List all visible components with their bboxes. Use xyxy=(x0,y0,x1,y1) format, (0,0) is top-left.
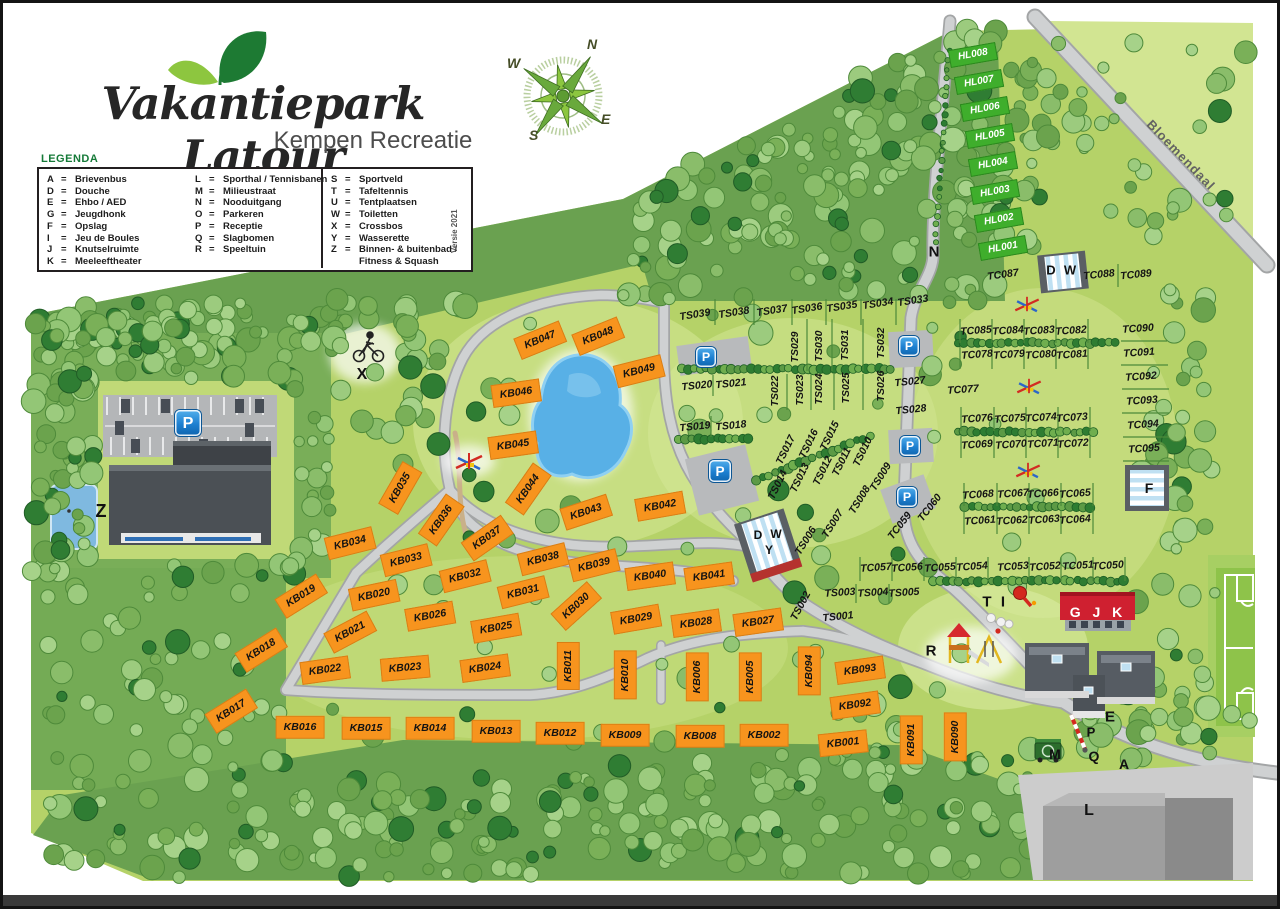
plot-TS031: TS031 xyxy=(840,330,851,361)
legend-entry-E: E=Ehbo / AED xyxy=(47,197,142,209)
plot-TS022: TS022 xyxy=(770,376,781,407)
road-label-bloemendaal: Bloemendaal xyxy=(1144,117,1219,194)
plot-KB001: KB001 xyxy=(818,729,869,756)
compass-w-label: W xyxy=(507,55,520,71)
plot-TC072: TC072 xyxy=(1057,438,1089,451)
plot-HL004: HL004 xyxy=(968,151,1018,177)
plot-KB043: KB043 xyxy=(559,494,612,530)
plot-TS027: TS027 xyxy=(894,375,926,389)
plot-TS008: TS008 xyxy=(847,484,872,516)
parking-icon: P xyxy=(709,460,731,482)
plot-TC074: TC074 xyxy=(1025,412,1057,425)
marker-e-ehbo: E xyxy=(1105,710,1115,725)
compass-rose-icon xyxy=(500,33,626,159)
plot-TS014: TS014 xyxy=(767,469,790,501)
plot-TC082: TC082 xyxy=(1055,325,1087,338)
compass-e-label: E xyxy=(601,111,610,127)
plot-TS013: TS013 xyxy=(789,462,812,494)
marker-w-toilet-top: W xyxy=(1064,264,1076,277)
plot-TC053: TC053 xyxy=(997,561,1029,574)
plot-TC079: TC079 xyxy=(993,349,1025,362)
plot-TC066: TC066 xyxy=(1027,488,1059,501)
plot-TC083: TC083 xyxy=(1023,325,1055,338)
plot-TC078: TC078 xyxy=(961,349,993,362)
plot-KB036: KB036 xyxy=(418,494,464,547)
plot-KB028: KB028 xyxy=(670,608,721,637)
plot-TS038: TS038 xyxy=(718,305,750,320)
plot-TS019: TS019 xyxy=(679,420,711,434)
compass-n-label: N xyxy=(587,36,597,52)
legend-column-2: L=Sporthal / TennisbanenM=MilieustraatN=… xyxy=(195,174,327,256)
legend-entry-W: W=Toiletten xyxy=(331,209,457,221)
plot-TS020: TS020 xyxy=(681,379,713,393)
plot-TS030: TS030 xyxy=(814,331,825,362)
plot-TC067: TC067 xyxy=(997,488,1029,501)
plot-TC054: TC054 xyxy=(956,561,988,574)
plot-TC052: TC052 xyxy=(1029,561,1061,574)
plot-KB011: KB011 xyxy=(557,642,580,690)
plot-KB005: KB005 xyxy=(739,653,762,702)
marker-n-nooduitgang: N xyxy=(929,245,940,260)
marker-gjk-building: G J K xyxy=(1070,605,1127,619)
plot-TC077: TC077 xyxy=(947,384,979,397)
plot-KB017: KB017 xyxy=(204,689,257,734)
marker-d-toilet-top: D xyxy=(1046,264,1055,277)
plot-TC050: TC050 xyxy=(1092,560,1124,573)
plot-TS002: TS002 xyxy=(789,590,813,622)
plot-TS003: TS003 xyxy=(824,587,856,600)
plot-TS017: TS017 xyxy=(775,434,798,466)
plot-TC081: TC081 xyxy=(1056,349,1088,362)
plot-TS035: TS035 xyxy=(826,299,858,314)
plot-KB032: KB032 xyxy=(439,559,492,593)
plot-TC065: TC065 xyxy=(1059,488,1091,501)
legend-entry-U: U=Tentplaatsen xyxy=(331,197,457,209)
plot-KB048: KB048 xyxy=(571,316,625,355)
plot-KB091: KB091 xyxy=(900,716,923,765)
legend-version: Versie 2021 xyxy=(450,209,459,253)
plot-KB049: KB049 xyxy=(613,354,666,388)
plot-KB023: KB023 xyxy=(380,655,430,682)
plot-KB090: KB090 xyxy=(944,713,967,762)
plot-TC093: TC093 xyxy=(1126,395,1158,408)
plot-KB009: KB009 xyxy=(601,724,650,747)
parking-icon: P xyxy=(897,487,917,507)
plot-TS025: TS025 xyxy=(841,373,852,404)
plot-TC064: TC064 xyxy=(1059,514,1091,527)
plot-HL005: HL005 xyxy=(965,123,1015,149)
plot-KB016: KB016 xyxy=(276,716,325,739)
plot-KB092: KB092 xyxy=(829,690,880,719)
plot-TS009: TS009 xyxy=(868,461,893,493)
plot-HL001: HL001 xyxy=(978,235,1028,261)
marker-t-tafeltennis: T xyxy=(982,595,991,610)
marker-x-crossbos: X xyxy=(357,367,368,383)
compass-s-label: S xyxy=(529,127,538,143)
legend-entry-Q: Q=Slagbomen xyxy=(195,233,327,245)
legend-entry-M: M=Milieustraat xyxy=(195,186,327,198)
marker-f-opslag: F xyxy=(1145,481,1154,495)
legend-entry-O: O=Parkeren xyxy=(195,209,327,221)
plot-KB041: KB041 xyxy=(683,561,734,590)
plot-KB024: KB024 xyxy=(459,653,510,682)
plot-TS024: TS024 xyxy=(814,374,825,405)
parking-icon: P xyxy=(175,410,201,436)
plot-KB014: KB014 xyxy=(406,717,455,740)
marker-a-brievenbus: A xyxy=(1119,757,1129,771)
marker-l-sporthal: L xyxy=(1084,803,1094,819)
plot-TS021: TS021 xyxy=(715,377,747,391)
plot-TS023: TS023 xyxy=(795,375,806,406)
legend-entry-J: J=Knutselruimte xyxy=(47,244,142,256)
plot-TC085: TC085 xyxy=(960,325,992,338)
parking-icon: P xyxy=(696,347,716,367)
plot-TC055: TC055 xyxy=(924,562,956,575)
plot-KB031: KB031 xyxy=(497,575,550,609)
marker-q-slagboom: Q xyxy=(1089,749,1100,763)
plot-TC088: TC088 xyxy=(1083,268,1115,282)
plot-KB021: KB021 xyxy=(323,611,377,654)
legend-entry-K: K=Meeleeftheater xyxy=(47,256,142,268)
plot-TC070: TC070 xyxy=(995,439,1027,452)
plot-KB027: KB027 xyxy=(732,607,783,636)
legend-entry-L: L=Sporthal / Tennisbanen xyxy=(195,174,327,186)
plot-KB093: KB093 xyxy=(834,655,885,684)
plot-KB038: KB038 xyxy=(517,542,570,576)
legend-heading: LEGENDA xyxy=(41,153,98,165)
marker-y-wasserette: Y xyxy=(765,544,773,556)
plot-TC060: TC060 xyxy=(916,492,944,523)
plot-KB033: KB033 xyxy=(380,543,433,577)
plot-KB094: KB094 xyxy=(798,647,821,696)
legend-entry-Z: Z=Binnen- & buitenbad / Fitness & Squash xyxy=(331,244,457,267)
marker-i-jeudeboules: I xyxy=(1001,595,1005,610)
legend-entry-D: D=Douche xyxy=(47,186,142,198)
marker-z-zwembad: Z xyxy=(96,502,107,520)
plot-KB046: KB046 xyxy=(490,378,541,407)
plot-TS007: TS007 xyxy=(820,508,845,540)
plot-KB039: KB039 xyxy=(568,548,621,582)
plot-TC087: TC087 xyxy=(987,268,1020,283)
plot-TS026: TS026 xyxy=(876,371,887,402)
plot-KB025: KB025 xyxy=(470,613,522,644)
parking-icon: P xyxy=(899,336,919,356)
plot-KB010: KB010 xyxy=(614,651,637,700)
legend-entry-R: R=Speeltuin xyxy=(195,244,327,256)
plot-HL006: HL006 xyxy=(960,96,1010,122)
plot-KB022: KB022 xyxy=(299,655,350,684)
plot-TS018: TS018 xyxy=(715,419,747,433)
plot-KB018: KB018 xyxy=(234,628,287,673)
plot-KB044: KB044 xyxy=(505,463,551,516)
plot-KB013: KB013 xyxy=(472,720,521,743)
plot-TC089: TC089 xyxy=(1120,268,1152,282)
plot-TS004: TS004 xyxy=(857,587,889,600)
plot-TS010: TS010 xyxy=(852,436,875,468)
plot-TC051: TC051 xyxy=(1062,560,1094,573)
plot-TC062: TC062 xyxy=(996,515,1028,528)
plot-KB026: KB026 xyxy=(404,601,456,632)
legend-entry-N: N=Nooduitgang xyxy=(195,197,327,209)
plot-TS034: TS034 xyxy=(862,296,894,311)
plot-KB045: KB045 xyxy=(487,430,538,459)
plot-TS028: TS028 xyxy=(895,403,927,417)
parking-icon: P xyxy=(900,436,920,456)
marker-p-receptie: P xyxy=(1087,726,1096,739)
plot-KB040: KB040 xyxy=(624,561,675,590)
plot-KB042: KB042 xyxy=(634,491,686,522)
plot-TC057: TC057 xyxy=(860,562,892,575)
plot-KB020: KB020 xyxy=(348,579,400,611)
plot-KB006: KB006 xyxy=(686,653,709,702)
plot-TC084: TC084 xyxy=(992,325,1024,338)
plot-KB012: KB012 xyxy=(536,722,585,745)
plot-KB037: KB037 xyxy=(461,515,514,561)
plot-HL003: HL003 xyxy=(970,179,1020,205)
park-subtitle: Kempen Recreatie xyxy=(253,127,493,155)
plot-KB034: KB034 xyxy=(324,526,377,560)
plot-TC080: TC080 xyxy=(1025,349,1057,362)
plot-TS032: TS032 xyxy=(876,328,887,359)
plot-TS015: TS015 xyxy=(819,420,842,452)
plot-TC071: TC071 xyxy=(1027,438,1059,451)
plot-TC075: TC075 xyxy=(994,413,1026,426)
park-map-page: Vakantiepark Latour Kempen Recreatie LEG… xyxy=(0,0,1280,909)
bottom-bar xyxy=(3,895,1277,906)
plot-KB047: KB047 xyxy=(513,320,567,359)
legend-column-1: A=BrievenbusD=DoucheE=Ehbo / AEDG=Jeugdh… xyxy=(47,174,142,268)
map-labels-layer: Vakantiepark Latour Kempen Recreatie LEG… xyxy=(3,3,1277,906)
plot-KB035: KB035 xyxy=(378,461,422,514)
plot-KB019: KB019 xyxy=(274,574,327,619)
plot-TC056: TC056 xyxy=(891,562,923,575)
plot-TS039: TS039 xyxy=(679,307,711,322)
plot-TC068: TC068 xyxy=(962,489,994,502)
plot-HL008: HL008 xyxy=(948,42,998,68)
marker-m-milieustraat: M xyxy=(1049,747,1061,761)
plot-TC059: TC059 xyxy=(886,510,914,541)
marker-r-speeltuin: R xyxy=(926,644,937,659)
plot-TS033: TS033 xyxy=(897,293,929,308)
plot-TC092: TC092 xyxy=(1125,371,1157,384)
plot-KB008: KB008 xyxy=(676,725,725,748)
marker-w-toilet-mid: W xyxy=(770,528,781,540)
plot-TS006: TS006 xyxy=(793,525,818,557)
plot-TS029: TS029 xyxy=(790,332,801,363)
legend-entry-Y: Y=Wasserette xyxy=(331,233,457,245)
plot-TC091: TC091 xyxy=(1123,347,1155,360)
plot-TS001: TS001 xyxy=(822,610,854,624)
plot-TC069: TC069 xyxy=(961,439,993,452)
legend-entry-T: T=Tafeltennis xyxy=(331,186,457,198)
plot-KB030: KB030 xyxy=(550,581,601,630)
plot-KB029: KB029 xyxy=(610,604,662,635)
plot-TC090: TC090 xyxy=(1122,323,1154,336)
plot-HL002: HL002 xyxy=(974,207,1024,233)
plot-TS037: TS037 xyxy=(756,303,788,318)
legend-entry-S: S=Sportveld xyxy=(331,174,457,186)
legend-entry-F: F=Opslag xyxy=(47,221,142,233)
marker-d-toilet-mid: D xyxy=(754,529,763,541)
legend-entry-I: I=Jeu de Boules xyxy=(47,233,142,245)
plot-TC095: TC095 xyxy=(1128,443,1160,456)
plot-KB002: KB002 xyxy=(740,724,789,747)
legend-entry-P: P=Receptie xyxy=(195,221,327,233)
plot-HL007: HL007 xyxy=(954,69,1004,95)
legend-entry-A: A=Brievenbus xyxy=(47,174,142,186)
plot-TC061: TC061 xyxy=(964,515,996,528)
legend-column-3: S=SportveldT=TafeltennisU=TentplaatsenW=… xyxy=(331,174,457,268)
plot-TC094: TC094 xyxy=(1127,419,1159,432)
legend-entry-X: X=Crossbos xyxy=(331,221,457,233)
plot-TC063: TC063 xyxy=(1028,514,1060,527)
plot-TS036: TS036 xyxy=(791,301,823,316)
plot-TC073: TC073 xyxy=(1056,412,1088,425)
plot-TS016: TS016 xyxy=(798,428,821,460)
plot-TS005: TS005 xyxy=(888,587,920,600)
plot-KB015: KB015 xyxy=(342,717,391,740)
legend-entry-G: G=Jeugdhonk xyxy=(47,209,142,221)
plot-TC076: TC076 xyxy=(961,413,993,426)
